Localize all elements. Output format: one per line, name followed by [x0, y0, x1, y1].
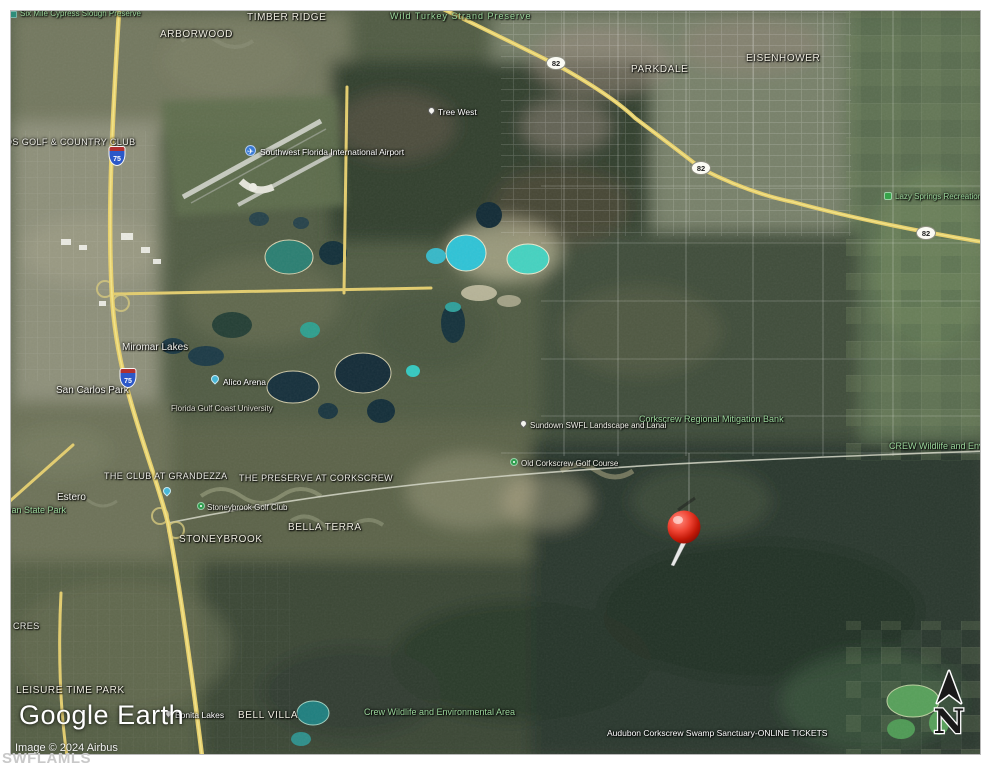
six-mile-cypress-slough-preserve-label: Six Mile Cypress Slough Preserve	[20, 10, 141, 19]
bella-terra-label: BELLA TERRA	[288, 522, 362, 533]
arborwood-label: ARBORWOOD	[160, 29, 233, 40]
the-preserve-at-corkscrew-label: THE PRESERVE AT CORKSCREW	[239, 474, 393, 484]
airport-icon[interactable]	[245, 145, 256, 156]
preserve-square-icon	[10, 11, 17, 18]
eisenhower-label: EISENHOWER	[746, 53, 820, 64]
timber-ridge-label: TIMBER RIDGE	[247, 12, 326, 23]
i-75-shield-a: 75	[109, 146, 126, 166]
sundown-swfl-landscape-lanai-label[interactable]: Sundown SWFL Landscape and Lanai	[530, 422, 666, 431]
blue-pin-icon[interactable]	[161, 485, 172, 496]
mls-watermark: SWFLAMLS	[2, 750, 91, 767]
the-club-at-grandezza-label: THE CLUB AT GRANDEZZA	[104, 472, 228, 482]
route-82-shield-c: 82	[916, 226, 936, 240]
google-earth-logo: Google Earth	[19, 700, 184, 731]
white-pin-icon[interactable]	[427, 106, 437, 116]
north-arrow-icon	[937, 671, 961, 703]
san-carlos-park-label: San Carlos Park	[56, 385, 129, 396]
golf-icon[interactable]	[510, 458, 518, 466]
screenshot-root: Six Mile Cypress Slough PreserveTIMBER R…	[0, 0, 995, 768]
north-compass: N	[929, 667, 969, 741]
crew-wildlife-right-label: CREW Wildlife and Environmental Area	[889, 442, 981, 452]
crew-wildlife-bottom-label: Crew Wildlife and Environmental Area	[364, 708, 515, 718]
blue-pin-icon[interactable]	[209, 373, 220, 384]
wild-turkey-strand-preserve-label: Wild Turkey Strand Preserve	[390, 12, 532, 22]
koreshan-state-park-label: Koreshan State Park	[10, 506, 66, 516]
i-75-shield-b: 75	[120, 368, 137, 388]
stoneybrook-golf-club-label[interactable]: Stoneybrook Golf Club	[207, 504, 288, 513]
rec-park-icon[interactable]	[884, 192, 892, 200]
north-letter: N	[933, 702, 964, 741]
parkdale-label: PARKDALE	[631, 64, 688, 75]
route-82-shield-b: 82	[691, 161, 711, 175]
old-corkscrew-golf-course-label[interactable]: Old Corkscrew Golf Course	[521, 460, 618, 469]
acres-label: CRES	[13, 622, 40, 632]
estero-label: Estero	[57, 492, 86, 503]
florida-gulf-coast-university-label: Florida Gulf Coast University	[171, 405, 273, 414]
alico-arena-label[interactable]: Alico Arena	[223, 378, 266, 387]
satellite-map[interactable]: Six Mile Cypress Slough PreserveTIMBER R…	[10, 10, 981, 755]
miromar-lakes-label: Miromar Lakes	[122, 342, 188, 353]
golf-icon[interactable]	[197, 502, 205, 510]
audubon-corkscrew-swamp-sanctuary-label: Audubon Corkscrew Swamp Sanctuary-ONLINE…	[607, 729, 827, 738]
stoneybrook-label: STONEYBROOK	[179, 534, 263, 545]
leisure-time-park-label: LEISURE TIME PARK	[16, 685, 125, 696]
route-82-shield-a: 82	[546, 56, 566, 70]
lazy-springs-recreation-park-label[interactable]: Lazy Springs Recreation Park	[895, 193, 981, 202]
bell-villa-label: BELL VILLA	[238, 710, 298, 721]
swfl-intl-airport-label[interactable]: Southwest Florida International Airport	[260, 148, 404, 157]
tree-west-label[interactable]: Tree West	[438, 108, 477, 117]
white-pin-icon[interactable]	[519, 419, 529, 429]
map-labels: Six Mile Cypress Slough PreserveTIMBER R…	[11, 11, 980, 754]
